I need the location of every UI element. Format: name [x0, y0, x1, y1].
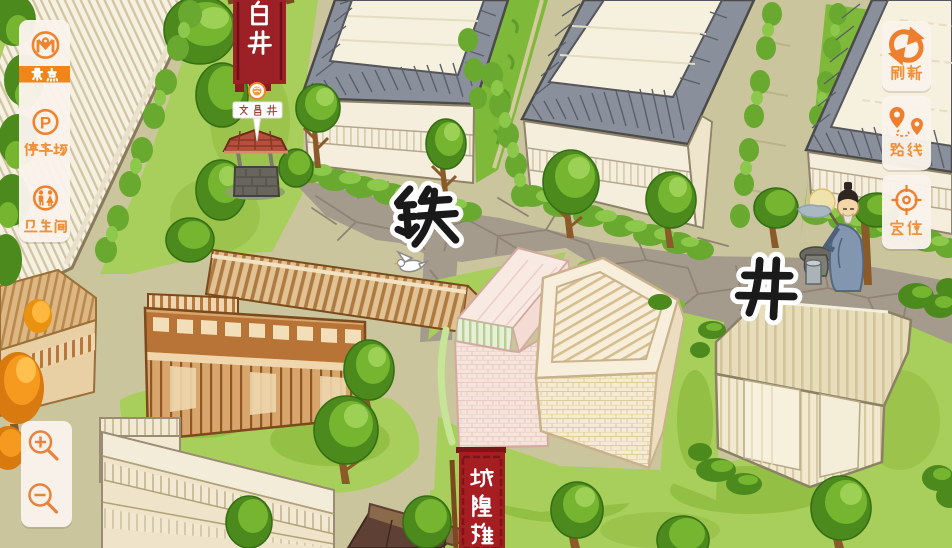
svg-text:P: P — [40, 114, 51, 133]
